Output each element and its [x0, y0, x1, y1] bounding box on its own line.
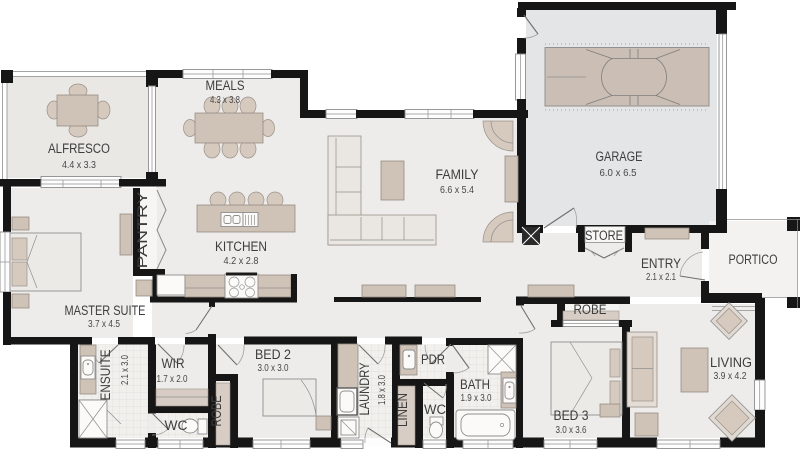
- svg-text:3.0 x 3.0: 3.0 x 3.0: [258, 363, 289, 374]
- svg-text:KITCHEN: KITCHEN: [215, 239, 267, 254]
- svg-text:BED 3: BED 3: [554, 408, 589, 423]
- svg-text:LINEN: LINEN: [395, 393, 410, 427]
- svg-text:MASTER SUITE: MASTER SUITE: [65, 303, 146, 318]
- svg-text:PANTRY: PANTRY: [135, 192, 150, 269]
- svg-text:BED 2: BED 2: [255, 347, 291, 362]
- svg-text:GARAGE: GARAGE: [596, 149, 643, 164]
- svg-text:ROBE: ROBE: [209, 396, 224, 427]
- svg-text:LAUNDRY: LAUNDRY: [357, 363, 372, 416]
- svg-text:2.1 x 2.1: 2.1 x 2.1: [646, 272, 676, 283]
- svg-text:4.3 x 3.8: 4.3 x 3.8: [210, 95, 240, 106]
- svg-text:WIR: WIR: [162, 356, 185, 371]
- svg-text:3.9 x 4.2: 3.9 x 4.2: [714, 371, 747, 382]
- svg-text:3.7 x 4.5: 3.7 x 4.5: [88, 319, 120, 330]
- svg-text:WC: WC: [165, 418, 188, 433]
- svg-text:ROBE: ROBE: [574, 302, 607, 317]
- svg-text:ENSUITE: ENSUITE: [98, 350, 113, 401]
- svg-text:3.0 x 3.6: 3.0 x 3.6: [556, 425, 587, 436]
- svg-text:6.0 x 6.5: 6.0 x 6.5: [600, 168, 638, 179]
- svg-text:BATH: BATH: [460, 377, 490, 392]
- svg-text:FAMILY: FAMILY: [436, 167, 479, 182]
- svg-text:4.4 x 3.3: 4.4 x 3.3: [62, 160, 96, 171]
- svg-text:4.2 x 2.8: 4.2 x 2.8: [224, 256, 260, 267]
- svg-text:PDR: PDR: [421, 352, 445, 367]
- svg-text:ENTRY: ENTRY: [641, 256, 681, 271]
- svg-text:1.9 x 3.0: 1.9 x 3.0: [461, 393, 492, 404]
- svg-text:1.8 x 3.0: 1.8 x 3.0: [377, 375, 388, 405]
- svg-text:6.6 x 5.4: 6.6 x 5.4: [440, 185, 474, 196]
- svg-text:PORTICO: PORTICO: [729, 252, 778, 267]
- svg-text:1.7 x 2.0: 1.7 x 2.0: [157, 374, 188, 385]
- svg-text:LIVING: LIVING: [710, 355, 752, 370]
- svg-text:MEALS: MEALS: [206, 78, 245, 93]
- svg-text:2.1 x 3.0: 2.1 x 3.0: [120, 355, 131, 385]
- svg-text:STORE: STORE: [585, 228, 623, 243]
- svg-text:WC: WC: [424, 402, 446, 417]
- svg-text:ALFRESCO: ALFRESCO: [48, 141, 110, 156]
